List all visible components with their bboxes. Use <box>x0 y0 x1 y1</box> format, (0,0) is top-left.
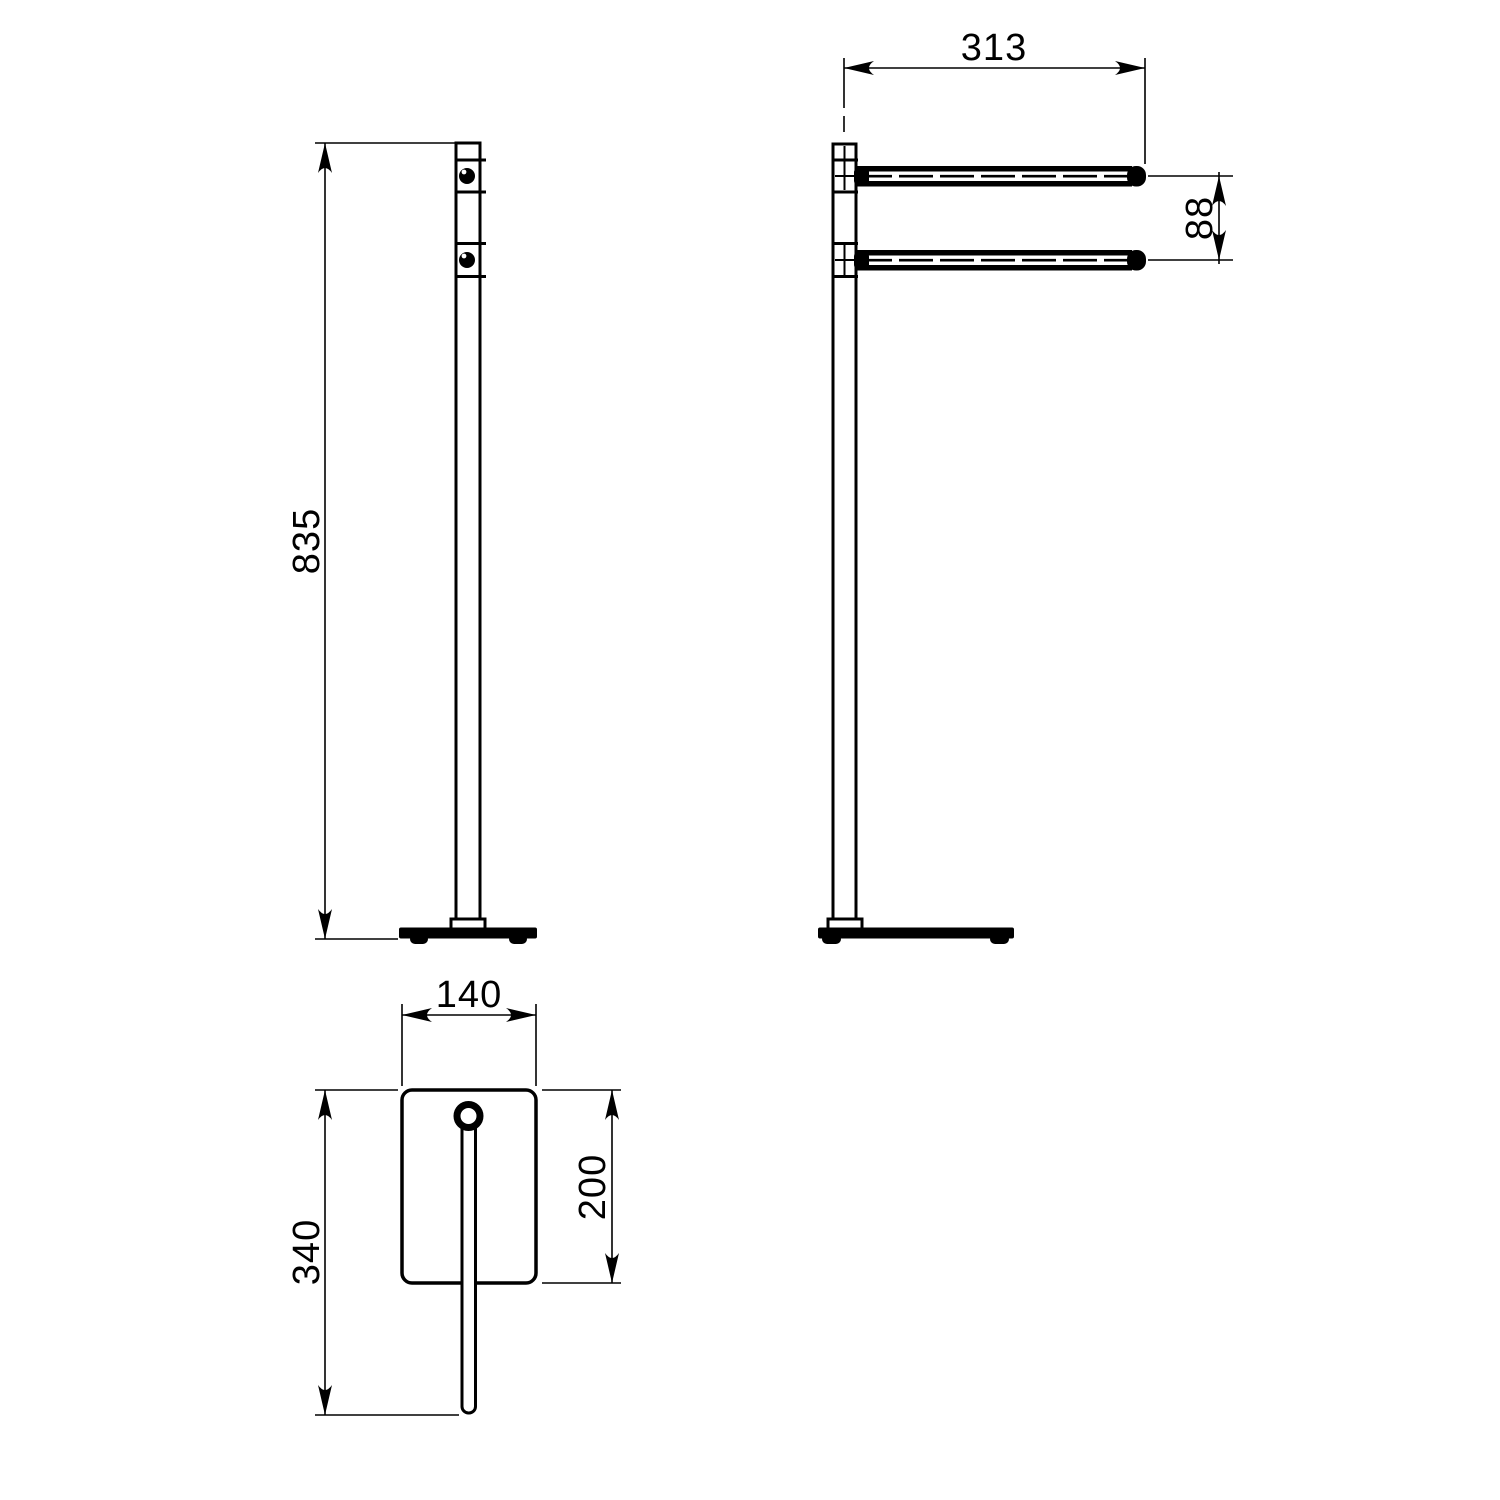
side-view <box>818 144 1146 944</box>
dim-rail-spacing-label: 88 <box>1179 196 1221 240</box>
dim-stand-height-label: 835 <box>286 508 328 574</box>
dim-overall-depth-label: 340 <box>286 1219 328 1285</box>
technical-drawing: 835 <box>0 0 1500 1500</box>
rail-mount <box>854 167 869 187</box>
front-base-plate <box>399 928 537 939</box>
towel-rail-lower <box>854 250 1146 271</box>
pole-section-circle <box>457 1105 480 1128</box>
towel-rail-upper <box>854 166 1146 187</box>
dim-plate-depth: 200 <box>542 1090 621 1283</box>
front-set-screw-upper <box>459 168 475 184</box>
dim-rail-length: 313 <box>844 27 1145 164</box>
dim-rail-length-label: 313 <box>961 27 1027 69</box>
rail-mount <box>854 251 869 271</box>
screw-highlight <box>462 254 467 259</box>
dim-base-width: 140 <box>402 974 536 1086</box>
rail-bottom-edge <box>856 265 1132 271</box>
rail-end-cap <box>1127 250 1146 271</box>
dim-plate-depth-label: 200 <box>572 1154 614 1220</box>
rail-bottom-edge <box>856 181 1132 187</box>
screw-highlight <box>462 170 467 175</box>
side-base-plate <box>818 928 1014 939</box>
rail-top-edge <box>856 166 1132 172</box>
front-view <box>399 143 537 944</box>
rail-top-view <box>462 1104 476 1413</box>
dim-base-width-label: 140 <box>436 974 502 1016</box>
dim-rail-spacing: 88 <box>1148 172 1233 264</box>
top-view <box>402 1090 536 1413</box>
dim-stand-height: 835 <box>286 143 456 939</box>
front-set-screw-lower <box>459 252 475 268</box>
rail-top-edge <box>856 250 1132 256</box>
rail-end-cap <box>1127 166 1146 187</box>
drawing-canvas: 835 <box>0 0 1500 1500</box>
